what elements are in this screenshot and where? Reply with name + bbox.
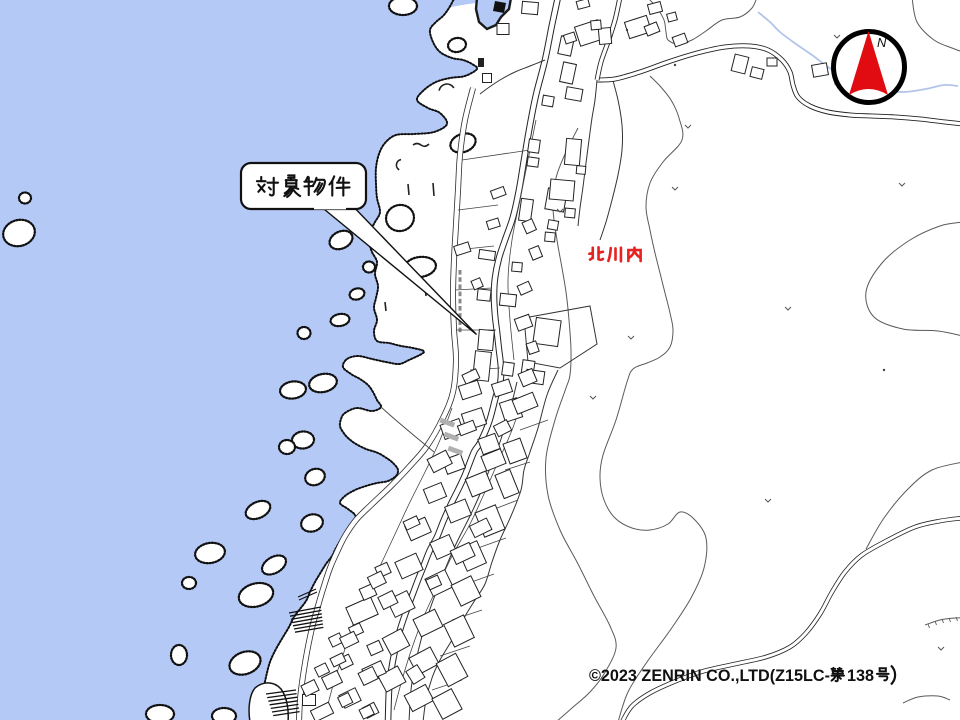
svg-text:138: 138 (847, 667, 874, 685)
svg-text:N: N (877, 35, 887, 50)
svg-text:©2023 ZENRIN CO.,LTD(Z15LC-: ©2023 ZENRIN CO.,LTD(Z15LC- (589, 667, 830, 685)
